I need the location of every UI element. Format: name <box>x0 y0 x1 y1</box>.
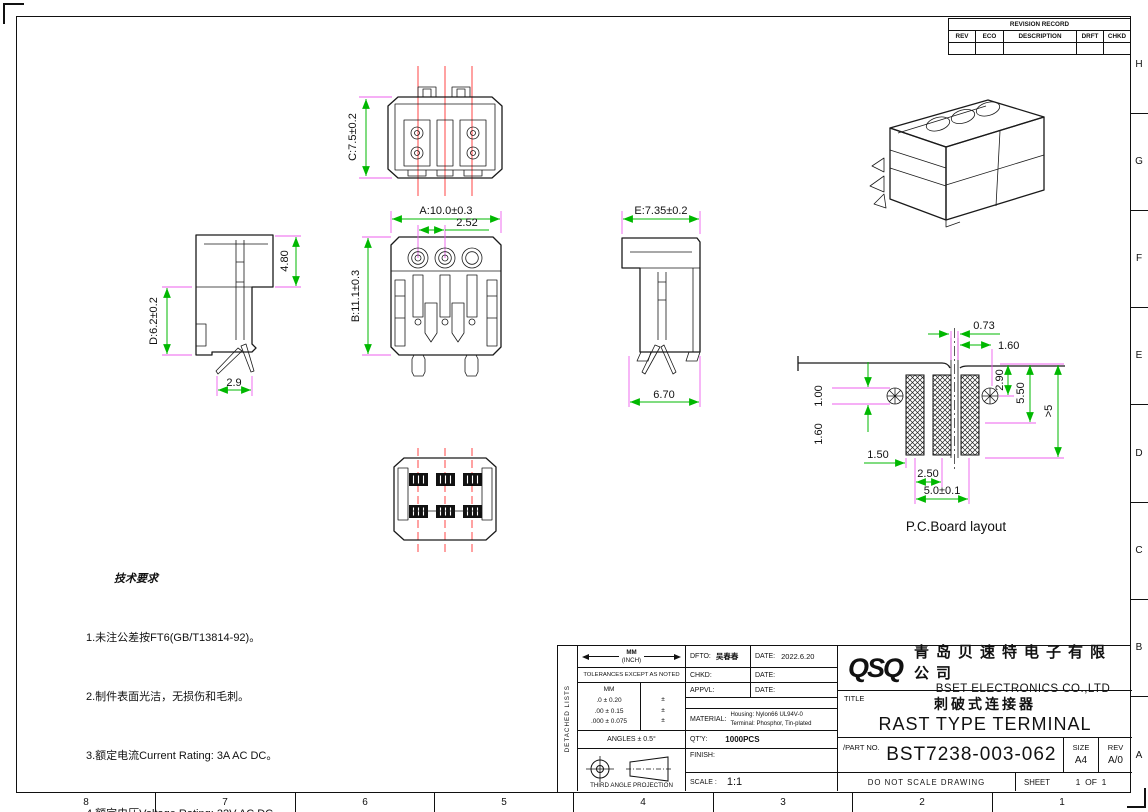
spare-cell <box>686 698 838 709</box>
rev-label: REV <box>1108 742 1123 753</box>
dfto-cell: DFTO: 吴春春 <box>686 646 751 668</box>
sheet-cell: SHEET 1 OF 1 <box>1016 773 1132 791</box>
dim-label-gt5: >5 <box>1043 405 1055 418</box>
finish-label: FINISH: <box>686 752 715 759</box>
pcb-pad-left <box>887 388 903 404</box>
material-housing: Housing: Nylon66 UL94V-0 <box>730 711 811 719</box>
sheet-value: 1 OF 1 <box>1050 777 1132 787</box>
dim-label-100: 1.00 <box>813 385 825 406</box>
chkd-date-cell: DATE: <box>751 668 838 683</box>
third-angle-projection-icon <box>584 756 680 782</box>
part-no-cell: /PART NO. BST7238-003-062 <box>838 738 1064 773</box>
tol-row-2: .00 ± 0.15 <box>595 707 624 718</box>
pcb-layout-drawing: 0.73 1.60 2.90 5.50 >5 1.00 1.60 1.50 <box>798 320 1065 534</box>
size-value: A4 <box>1075 753 1087 768</box>
pm-3: ± <box>661 716 665 727</box>
chkd-cell: CHKD: <box>686 668 751 683</box>
arrow-line <box>589 656 619 657</box>
material-label: MATERIAL: <box>686 716 726 723</box>
left-arrow-icon <box>582 654 589 660</box>
date-label: DATE: <box>751 672 775 679</box>
front-view-drawing: A:10.0±0.3 2.52 B:11.1±0.3 <box>350 205 501 376</box>
dim-label-150: 1.50 <box>867 449 888 461</box>
dim-label-e: E:7.35±0.2 <box>634 205 687 217</box>
note-line: 1.未注公差按FT6(GB/T13814-92)。 <box>86 629 396 649</box>
dim-label-250: 2.50 <box>917 468 938 480</box>
tol-row-1: .0 ± 0.20 <box>596 696 621 707</box>
projection-cell: THIRD ANGLE PROJECTION <box>578 749 686 791</box>
tolerances-heading: TOLERANCES EXCEPT AS NOTED <box>578 668 686 683</box>
tol-col-label: MM <box>604 685 615 696</box>
material-cell: MATERIAL: Housing: Nylon66 UL94V-0 Termi… <box>686 709 838 731</box>
dim-label-50: 5.0±0.1 <box>924 485 961 497</box>
dim-label-480: 4.80 <box>279 250 291 271</box>
rev-cell: REV A/0 <box>1099 738 1132 773</box>
top-view-drawing: C:7.5±0.2 <box>347 66 502 196</box>
dfto-value: 吴春春 <box>711 651 739 662</box>
size-cell: SIZE A4 <box>1064 738 1099 773</box>
notes-header: 技术要求 <box>86 570 396 590</box>
scale-label: SCALE : <box>686 779 717 786</box>
title-block: DETACHED LISTS MM (INCH) TOLERANCES EXCE… <box>557 645 1131 793</box>
angles-cell: ANGLES ± 0.5° <box>578 731 686 749</box>
rev-value: A/0 <box>1108 753 1123 768</box>
material-terminal: Terminal: Phosphor, Tin-plated <box>730 720 811 728</box>
date-label: DATE: <box>751 653 775 660</box>
units-cell: MM (INCH) <box>578 646 686 668</box>
technical-notes: 技术要求 1.未注公差按FT6(GB/T13814-92)。 2.制件表面光洁，… <box>86 531 396 812</box>
note-line: 3.额定电流Current Rating: 3A AC DC。 <box>86 747 396 767</box>
drawing-title-en: RAST TYPE TERMINAL <box>878 714 1091 735</box>
title-label: TITLE <box>844 694 864 703</box>
company-logo: QSQ <box>838 653 914 684</box>
dfto-label: DFTO: <box>686 653 711 660</box>
tolerance-mm-column: MM .0 ± 0.20 .00 ± 0.15 .000 ± 0.075 <box>578 683 641 731</box>
dim-label-pitch: 2.52 <box>456 217 477 229</box>
left-view-drawing: 4.80 D:6.2±0.2 2.9 <box>148 235 301 396</box>
units-inch-label: (INCH) <box>622 657 641 664</box>
date-value: 2022.6.20 <box>775 652 814 661</box>
dim-label-d: D:6.2±0.2 <box>148 297 160 345</box>
appvl-cell: APPVL: <box>686 683 751 698</box>
qty-label: QT'Y: <box>686 736 707 743</box>
drawing-title-cn: 刺破式连接器 <box>934 694 1036 714</box>
scale-cell: SCALE : 1:1 <box>686 773 838 791</box>
company-name-cn: 青岛贝速特电子有限公司 <box>914 641 1132 683</box>
finish-cell: FINISH: <box>686 749 838 773</box>
right-arrow-icon <box>674 654 681 660</box>
part-no-label: /PART NO. <box>838 738 880 752</box>
dim-label-29: 2.9 <box>226 377 241 389</box>
scale-value: 1:1 <box>717 776 742 788</box>
pcb-layout-caption: P.C.Board layout <box>906 519 1007 534</box>
projection-label: THIRD ANGLE PROJECTION <box>590 782 673 789</box>
pm-2: ± <box>661 706 665 717</box>
isometric-view <box>870 99 1044 227</box>
dim-label-b: B:11.1±0.3 <box>350 270 362 322</box>
chkd-label: CHKD: <box>686 672 712 679</box>
sheet-label: SHEET <box>1016 778 1050 787</box>
part-no-value: BST7238-003-062 <box>880 744 1063 766</box>
appvl-date-cell: DATE: <box>751 683 838 698</box>
dim-label-290: 2.90 <box>994 369 1006 390</box>
dim-label-c: C:7.5±0.2 <box>347 113 359 161</box>
date-label: DATE: <box>751 687 775 694</box>
appvl-label: APPVL: <box>686 687 715 694</box>
note-line: 2.制件表面光洁，无损伤和毛刺。 <box>86 688 396 708</box>
dim-label-a: A:10.0±0.3 <box>419 205 472 217</box>
side-view-drawing: E:7.35±0.2 6.70 <box>622 205 700 407</box>
bottom-view-drawing <box>394 448 496 556</box>
drawing-sheet: H G F E D C B A 8 7 6 5 4 3 2 1 REVISION… <box>0 0 1148 812</box>
dim-label-160l: 1.60 <box>813 423 825 444</box>
dim-label-670: 6.70 <box>653 389 674 401</box>
dfto-date-cell: DATE: 2022.6.20 <box>751 646 838 668</box>
tol-row-3: .000 ± 0.075 <box>591 717 627 728</box>
size-label: SIZE <box>1073 742 1090 753</box>
do-not-scale-cell: DO NOT SCALE DRAWING <box>838 773 1016 791</box>
dim-label-550: 5.50 <box>1015 382 1027 403</box>
detached-lists-strip: DETACHED LISTS <box>558 646 578 791</box>
qty-value: 1000PCS <box>707 735 759 744</box>
company-cell: QSQ 青岛贝速特电子有限公司 BSET ELECTRONICS CO.,LTD <box>838 646 1132 691</box>
qty-cell: QT'Y: 1000PCS <box>686 731 838 749</box>
note-line: 4.额定电压Voltage Rating: 32V AC DC。 <box>86 805 396 812</box>
dim-label-160t: 1.60 <box>998 340 1019 352</box>
arrow-line <box>644 656 674 657</box>
detached-lists-label: DETACHED LISTS <box>564 685 571 752</box>
pm-1: ± <box>661 695 665 706</box>
dim-label-073: 0.73 <box>973 320 994 332</box>
units-mm-label: MM <box>626 649 636 656</box>
title-cell: TITLE 刺破式连接器 RAST TYPE TERMINAL <box>838 691 1132 738</box>
tolerance-inch-column: ± ± ± <box>641 683 686 731</box>
